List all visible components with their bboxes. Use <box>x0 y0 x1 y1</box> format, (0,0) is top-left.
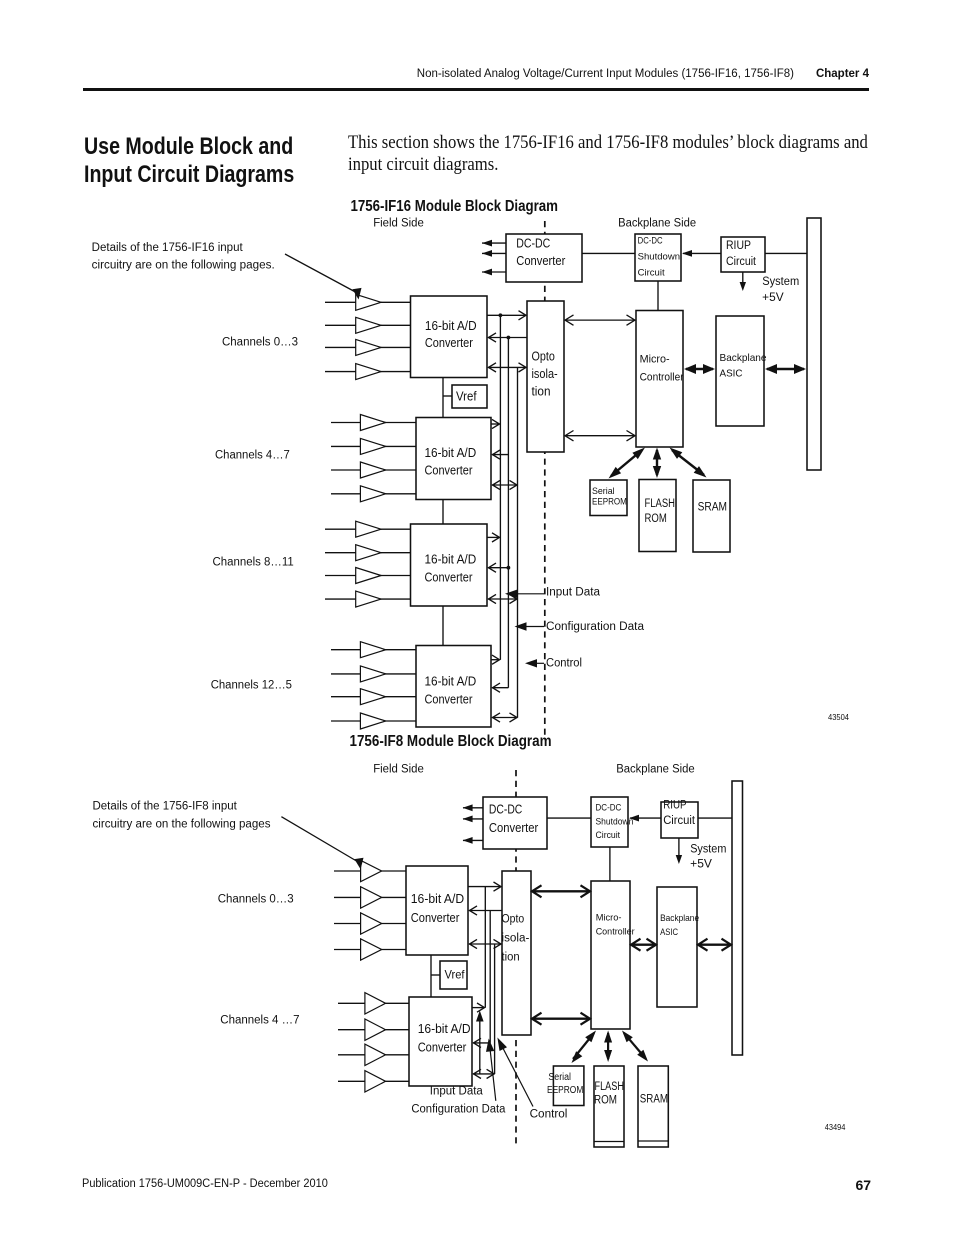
svg-text:Converter: Converter <box>411 910 460 925</box>
svg-text:tion: tion <box>502 952 520 964</box>
svg-text:EEPROM: EEPROM <box>547 1085 583 1096</box>
svg-text:Control: Control <box>546 658 582 670</box>
svg-text:Micro-: Micro- <box>596 913 622 924</box>
svg-text:Micro-: Micro- <box>640 354 670 366</box>
svg-text:Channels 4…7: Channels 4…7 <box>215 450 290 462</box>
svg-text:ASIC: ASIC <box>720 367 743 379</box>
svg-text:Circuit: Circuit <box>596 830 621 840</box>
svg-text:Channels 8…11: Channels 8…11 <box>213 557 294 569</box>
svg-text:43494: 43494 <box>825 1123 846 1132</box>
svg-text:Opto: Opto <box>532 350 555 364</box>
svg-text:RIUP: RIUP <box>726 240 751 252</box>
svg-text:Backplane: Backplane <box>660 913 699 924</box>
svg-text:circuitry are on the following: circuitry are on the following pages. <box>92 259 275 271</box>
svg-text:System: System <box>762 276 799 288</box>
svg-text:1756-IF8 Module Block Diagram: 1756-IF8 Module Block Diagram <box>350 733 552 750</box>
svg-text:System: System <box>690 844 726 856</box>
svg-text:+5V: +5V <box>690 859 712 871</box>
svg-text:Shutdown: Shutdown <box>638 252 681 263</box>
svg-text:Details of the 1756-IF16 input: Details of the 1756-IF16 input <box>92 242 244 254</box>
svg-text:Converter: Converter <box>425 570 474 585</box>
svg-text:RIUP: RIUP <box>663 800 687 812</box>
svg-text:SRAM: SRAM <box>640 1094 668 1106</box>
svg-text:Vref: Vref <box>456 390 477 404</box>
svg-text:ASIC: ASIC <box>660 927 678 938</box>
svg-text:Channels 12…5: Channels 12…5 <box>211 680 292 692</box>
svg-text:ROM: ROM <box>645 513 667 525</box>
svg-text:FLASH: FLASH <box>595 1081 625 1093</box>
svg-text:Converter: Converter <box>516 254 565 268</box>
svg-text:DC-DC: DC-DC <box>489 803 522 817</box>
svg-text:Serial: Serial <box>592 486 615 496</box>
svg-text:Backplane: Backplane <box>720 352 767 364</box>
svg-text:16-bit A/D: 16-bit A/D <box>425 445 477 460</box>
svg-text:Input Data: Input Data <box>546 587 601 599</box>
svg-text:16-bit A/D: 16-bit A/D <box>425 552 477 567</box>
svg-text:Field Side: Field Side <box>373 764 424 776</box>
svg-text:16-bit A/D: 16-bit A/D <box>411 891 464 906</box>
svg-text:43504: 43504 <box>828 713 850 722</box>
svg-text:Channels 4 …7: Channels 4 …7 <box>220 1015 299 1027</box>
svg-text:Vref: Vref <box>445 968 466 982</box>
svg-text:Converter: Converter <box>489 821 538 835</box>
svg-text:Controller: Controller <box>596 927 635 938</box>
svg-text:Field Side: Field Side <box>373 218 424 230</box>
svg-text:Backplane Side: Backplane Side <box>618 218 696 230</box>
svg-text:Input Data: Input Data <box>430 1086 484 1098</box>
svg-text:Opto: Opto <box>502 914 525 926</box>
svg-text:FLASH: FLASH <box>645 498 676 510</box>
svg-text:Configuration Data: Configuration Data <box>411 1104 506 1116</box>
svg-text:1756-IF16 Module Block Diagram: 1756-IF16 Module Block Diagram <box>351 198 559 215</box>
svg-text:DC-DC: DC-DC <box>596 803 622 813</box>
svg-text:16-bit A/D: 16-bit A/D <box>425 674 477 689</box>
svg-text:isola-: isola- <box>502 933 530 945</box>
svg-text:Details of the 1756-IF8 input: Details of the 1756-IF8 input <box>93 801 238 813</box>
svg-text:Configuration Data: Configuration Data <box>546 621 645 633</box>
svg-text:circuitry are on the following: circuitry are on the following pages <box>93 819 271 831</box>
svg-text:EEPROM: EEPROM <box>592 497 627 507</box>
svg-text:Circuit: Circuit <box>726 256 757 268</box>
svg-text:Channels 0…3: Channels 0…3 <box>222 337 298 349</box>
svg-text:Circuit: Circuit <box>663 815 696 827</box>
svg-text:+5V: +5V <box>762 292 784 304</box>
svg-text:ROM: ROM <box>594 1095 617 1107</box>
svg-text:Channels 0…3: Channels 0…3 <box>218 894 294 906</box>
svg-text:Controller: Controller <box>640 372 684 384</box>
svg-text:Converter: Converter <box>418 1040 467 1055</box>
svg-text:Converter: Converter <box>425 463 474 478</box>
svg-text:16-bit A/D: 16-bit A/D <box>425 318 477 333</box>
svg-text:tion: tion <box>532 385 551 399</box>
svg-text:16-bit A/D: 16-bit A/D <box>418 1021 471 1036</box>
svg-text:Control: Control <box>530 1109 568 1121</box>
svg-text:isola-: isola- <box>532 367 558 381</box>
svg-text:Backplane Side: Backplane Side <box>616 764 695 776</box>
svg-text:Shutdown: Shutdown <box>596 817 634 827</box>
svg-text:Circuit: Circuit <box>638 268 665 279</box>
svg-text:Serial: Serial <box>548 1072 571 1083</box>
svg-text:SRAM: SRAM <box>698 502 727 514</box>
svg-text:DC-DC: DC-DC <box>516 237 550 251</box>
svg-text:Converter: Converter <box>425 692 474 707</box>
svg-text:Converter: Converter <box>425 335 474 350</box>
svg-text:DC-DC: DC-DC <box>638 236 663 247</box>
